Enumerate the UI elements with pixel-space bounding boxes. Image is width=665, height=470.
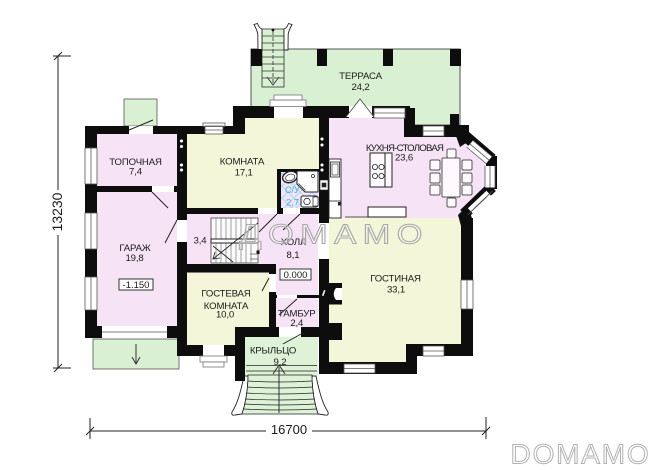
- svg-text:8,1: 8,1: [287, 250, 300, 261]
- svg-text:DOMAMO: DOMAMO: [511, 439, 651, 470]
- svg-text:ГОСТЕВАЯ: ГОСТЕВАЯ: [201, 289, 250, 300]
- svg-text:КРЫЛЬЦО: КРЫЛЬЦО: [250, 346, 296, 357]
- svg-text:16700: 16700: [271, 422, 307, 437]
- svg-text:23,6: 23,6: [395, 153, 413, 164]
- svg-text:2,7: 2,7: [286, 198, 299, 209]
- svg-text:2,4: 2,4: [290, 318, 304, 329]
- svg-text:КОМНАТА: КОМНАТА: [220, 157, 265, 168]
- svg-text:10,0: 10,0: [216, 310, 234, 321]
- svg-text:-1.150: -1.150: [123, 280, 150, 291]
- svg-text:33,1: 33,1: [387, 285, 405, 296]
- svg-text:17,1: 17,1: [235, 168, 253, 179]
- svg-text:7,4: 7,4: [129, 167, 143, 178]
- svg-text:0.000: 0.000: [284, 270, 308, 281]
- svg-text:3,4: 3,4: [194, 236, 208, 247]
- svg-text:19,8: 19,8: [125, 253, 143, 264]
- svg-text:С/У: С/У: [285, 185, 300, 195]
- svg-text:13230: 13230: [49, 192, 65, 231]
- svg-text:ГОСТИНАЯ: ГОСТИНАЯ: [370, 274, 421, 285]
- svg-text:9,2: 9,2: [274, 357, 287, 368]
- svg-text:ДОМАМО: ДОМАМО: [239, 219, 429, 250]
- svg-text:24,2: 24,2: [351, 82, 369, 93]
- svg-text:ТЕРРАСА: ТЕРРАСА: [339, 71, 382, 82]
